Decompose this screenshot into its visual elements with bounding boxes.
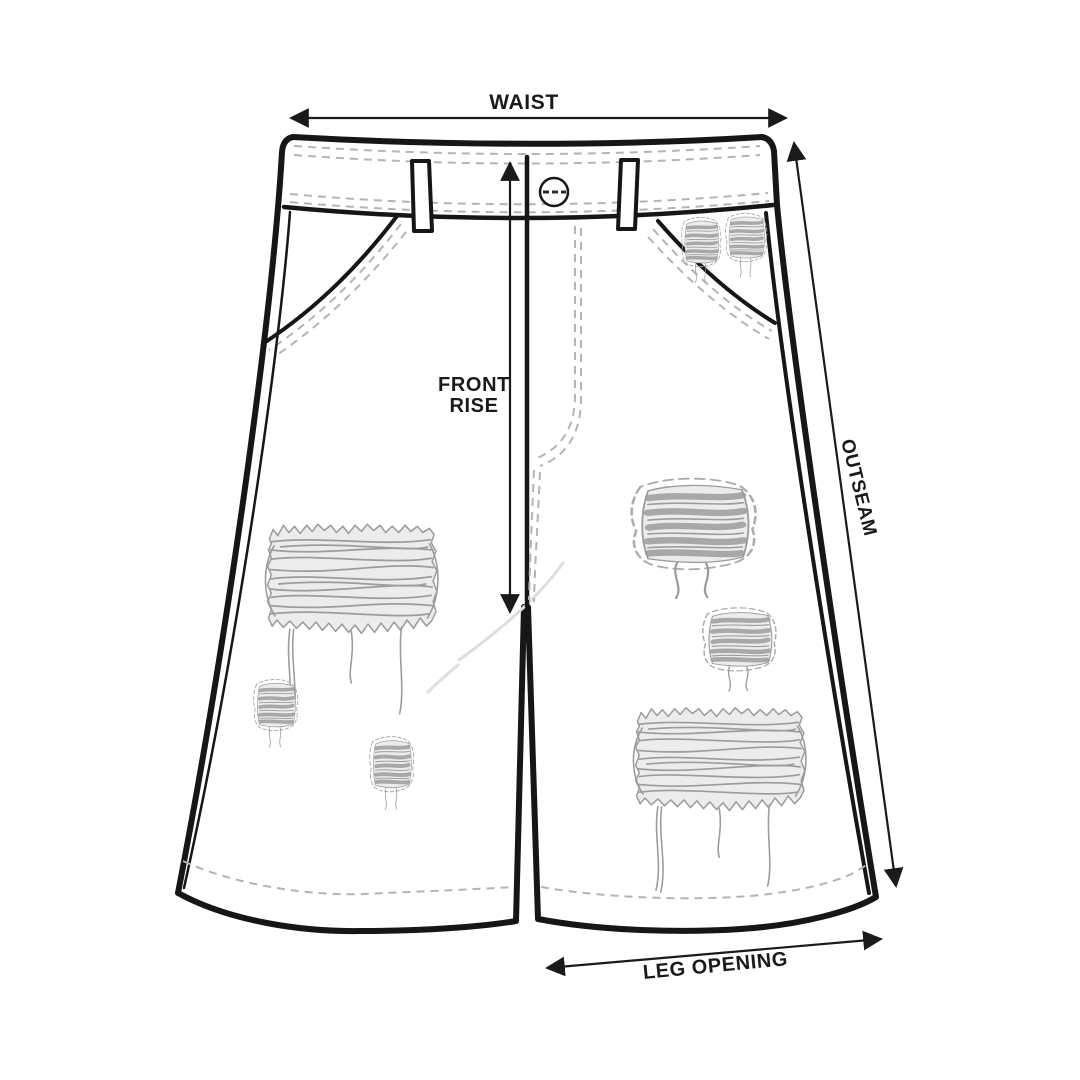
front-rise-label-line2: RISE bbox=[449, 395, 498, 417]
shorts-spec-sheet: WAIST FRONT RISE OUTSEAM LEG OPENING bbox=[0, 0, 1080, 1080]
belt-loop-left bbox=[412, 161, 432, 231]
shorts-body bbox=[178, 137, 876, 931]
waist-label: WAIST bbox=[489, 91, 559, 114]
leg-opening-measurement: LEG OPENING bbox=[547, 939, 881, 984]
front-rise-label-line1: FRONT bbox=[438, 374, 510, 396]
shorts-technical-flat: WAIST FRONT RISE OUTSEAM LEG OPENING bbox=[0, 0, 1080, 1080]
outseam-label: OUTSEAM bbox=[836, 437, 880, 538]
waist-measurement: WAIST bbox=[291, 91, 786, 118]
waist-button bbox=[540, 178, 568, 206]
belt-loop-right bbox=[618, 160, 638, 229]
